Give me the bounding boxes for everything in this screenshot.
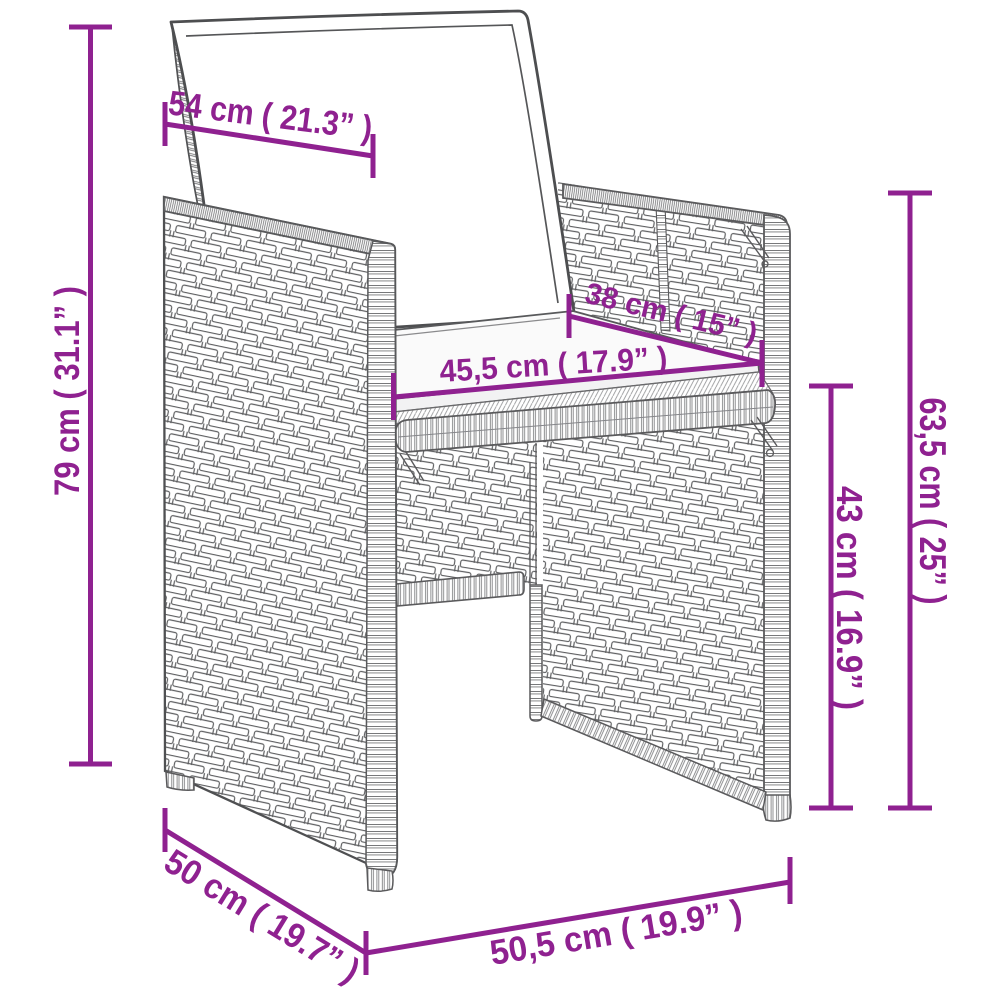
svg-text:79 cm ( 31.1” ): 79 cm ( 31.1” ): [47, 286, 87, 496]
svg-text:63,5 cm ( 25” ): 63,5 cm ( 25” ): [912, 398, 953, 605]
svg-text:43 cm ( 16.9” ): 43 cm ( 16.9” ): [829, 486, 870, 710]
